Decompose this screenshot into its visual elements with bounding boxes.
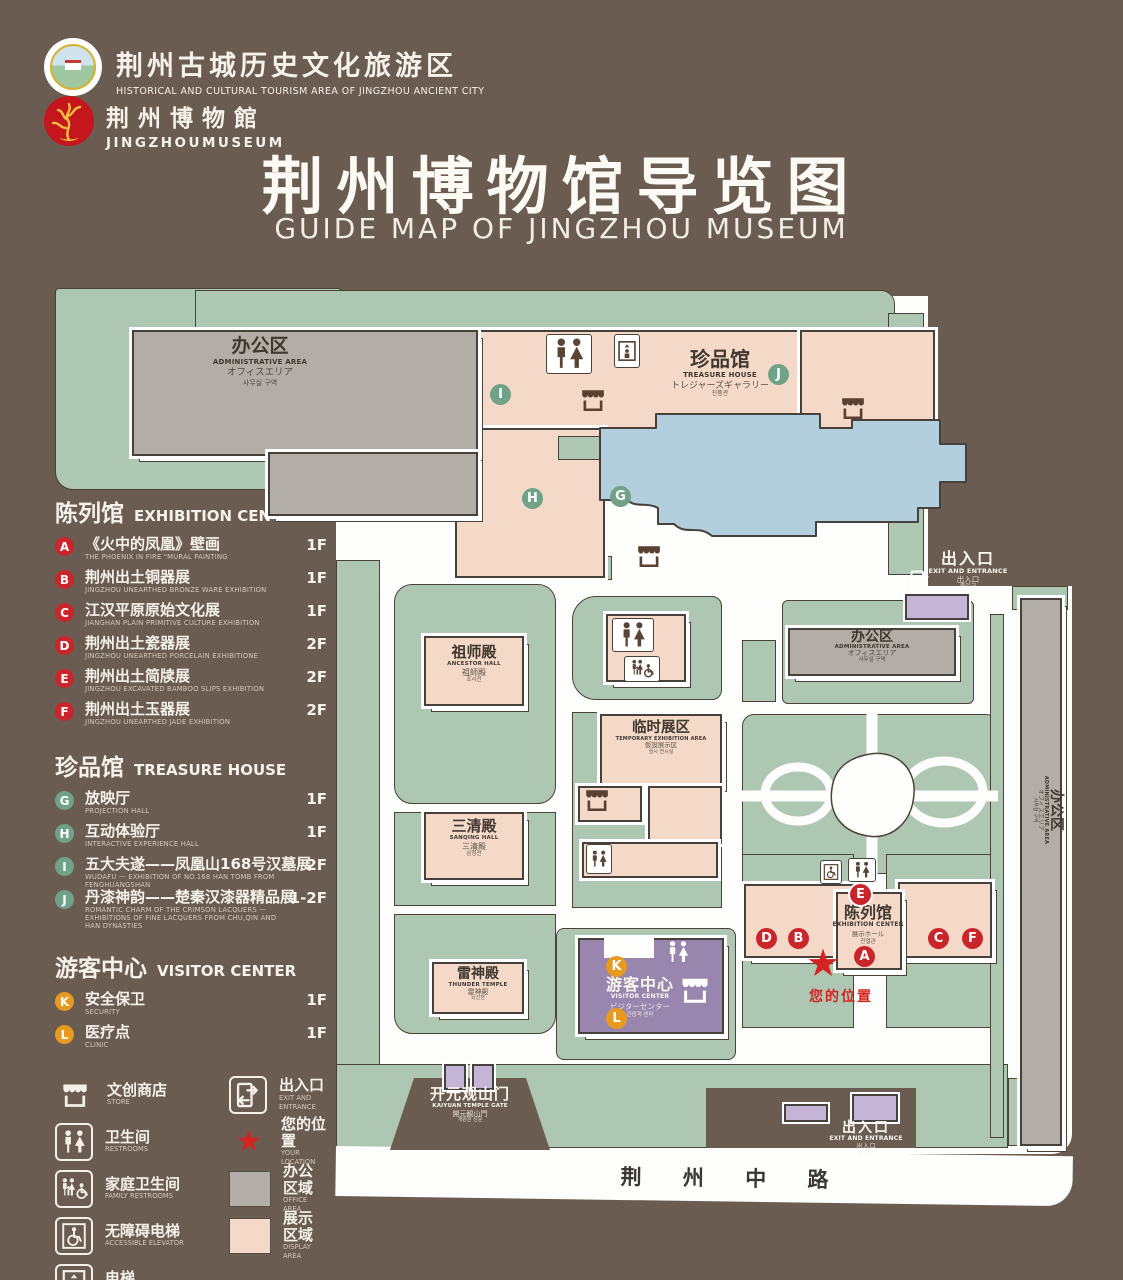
label-thunder-temple: 雷神殿 THUNDER TEMPLE 雷神殿 뇌신전 (432, 966, 524, 1002)
gate-northeast (905, 594, 969, 620)
your-location-label: 您的位置 (786, 986, 896, 1006)
restroom-icon-glyph (549, 337, 589, 371)
restroom-icon-glyph (851, 861, 873, 879)
map-marker-K: K (606, 956, 627, 977)
label-admin-northwest: 办公区 ADMINISTRATIVE AREA オフィスエリア 사무실 구역 (150, 336, 370, 387)
accessible-elevator-icon (820, 860, 842, 884)
exit-entrance-icon (908, 568, 932, 594)
store-icon (840, 396, 866, 420)
family-restroom-icon (624, 656, 660, 682)
museum-map: 荆 州 中 路 (0, 0, 1123, 1280)
road-label: 荆 州 中 路 (620, 1161, 845, 1194)
store-icon (584, 788, 610, 812)
exit-entrance-icon-glyph (908, 568, 932, 594)
map-marker-F: F (962, 928, 983, 949)
lawn-east-strip-thin (990, 614, 1004, 1138)
store-icon (680, 976, 710, 1004)
map-marker-L: L (606, 1008, 627, 1029)
guide-map-poster: 荆州古城历史文化旅游区 HISTORICAL AND CULTURAL TOUR… (0, 0, 1123, 1280)
accessible-elevator-icon-glyph (823, 863, 839, 881)
store-icon-glyph (636, 544, 662, 568)
lawn-west-strip (336, 560, 380, 1150)
map-marker-A: A (854, 946, 875, 967)
restroom-icon (612, 618, 654, 652)
map-marker-D: D (756, 928, 777, 949)
restroom-icon-glyph (589, 847, 609, 871)
label-ancestor-hall: 祖师殿 ANCESTOR HALL 祖師殿 조사전 (424, 644, 524, 683)
restroom-icon (848, 858, 876, 882)
lawn-east-small (742, 640, 776, 702)
map-marker-H: H (522, 488, 543, 509)
building-admin-northwest-annex (268, 452, 478, 516)
visitor-center-notch (604, 936, 654, 958)
map-marker-I: I (490, 384, 511, 405)
store-icon (636, 544, 662, 568)
restroom-icon (664, 940, 692, 964)
store-icon (580, 388, 606, 412)
your-location-star-icon: ★ (806, 944, 840, 982)
label-exhibition-center: 陈列馆 EXHIBITION CENTER 展示ホール 진열관 (806, 904, 930, 945)
label-temporary-exhibition: 临时展区 TEMPORARY EXHIBITION AREA 仮設展示区 임시 … (600, 720, 722, 756)
map-marker-J: J (768, 364, 789, 385)
road-jingzhou-middle: 荆 州 中 路 (335, 1146, 1073, 1206)
map-marker-G: G (610, 486, 631, 507)
map-marker-C: C (928, 928, 949, 949)
restroom-icon (586, 844, 612, 874)
label-admin-strip: 办公区 ADMINISTRATIVE AREA オフィスエリア 사무실 구역 (1019, 735, 1063, 885)
building-temporary-exhibition-leg (648, 786, 722, 844)
gate-southeast-b (852, 1094, 898, 1122)
garden-paths (742, 714, 998, 874)
label-admin-east: 办公区 ADMINISTRATIVE AREA オフィスエリア 사무실 구역 (790, 630, 954, 664)
elevator-icon-glyph (617, 337, 637, 365)
label-sanqing-hall: 三清殿 SANQING HALL 三清殿 삼청전 (424, 818, 524, 857)
lake (588, 404, 988, 550)
restroom-icon-glyph (615, 621, 651, 649)
family-restroom-icon-glyph (627, 659, 657, 679)
elevator-icon (614, 334, 640, 368)
lawn-north-band (195, 290, 895, 332)
store-icon-glyph (580, 388, 606, 412)
label-exit-southeast: 出入口 EXIT AND ENTRANCE 出入口 출입구 (806, 1120, 926, 1157)
restroom-icon-glyph (664, 940, 692, 964)
restroom-icon (546, 334, 592, 374)
store-icon-glyph (840, 396, 866, 420)
label-kaiyuan-gate: 开元观山门 KAIYUAN TEMPLE GATE 開元観山門 개원관 산문 (392, 1086, 548, 1123)
store-icon-glyph (584, 788, 610, 812)
map-marker-E: E (850, 884, 871, 905)
store-icon-glyph (680, 976, 710, 1004)
